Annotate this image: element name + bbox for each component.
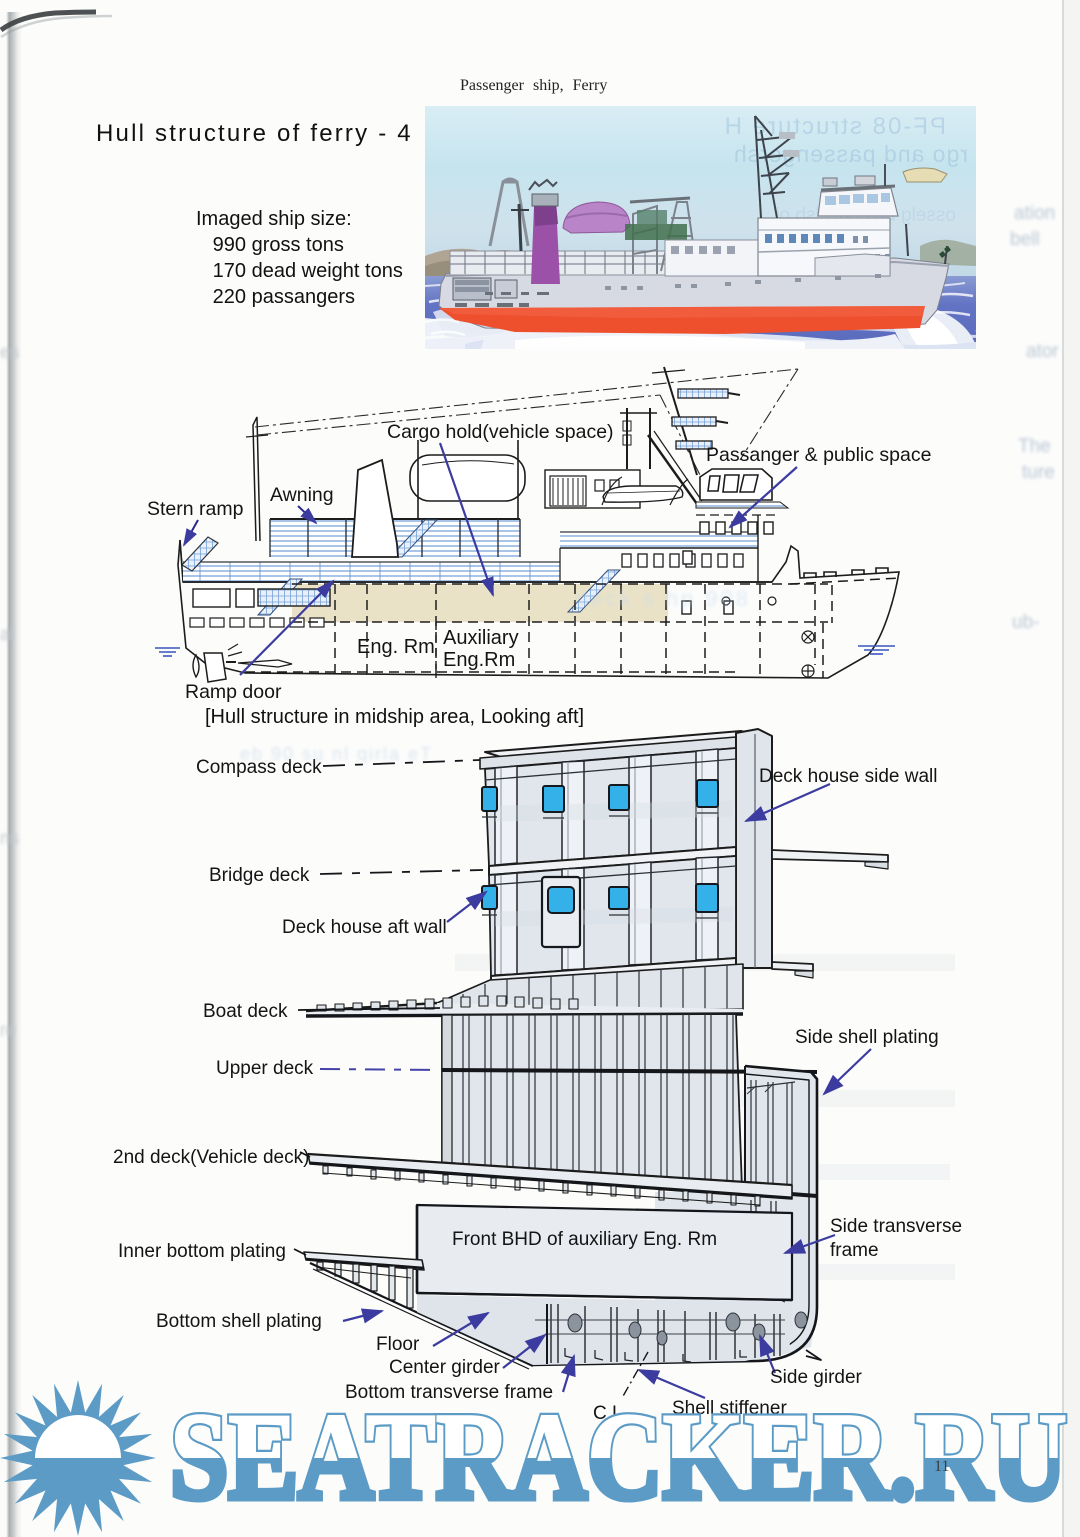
svg-text:Bridge deck: Bridge deck — [209, 865, 310, 886]
svg-text:Floor: Floor — [376, 1334, 420, 1355]
svg-text:Awning: Awning — [270, 484, 334, 506]
svg-text:Deck house aft wall: Deck house aft wall — [282, 917, 447, 938]
svg-text:Eng.Rm: Eng.Rm — [443, 649, 515, 671]
svg-text:Auxiliary: Auxiliary — [443, 627, 519, 649]
svg-text:Center girder: Center girder — [389, 1357, 501, 1378]
svg-text:2nd deck(Vehicle deck): 2nd deck(Vehicle deck) — [113, 1147, 309, 1168]
svg-text:frame: frame — [830, 1240, 879, 1261]
svg-text:Front BHD of auxiliary Eng. Rm: Front BHD of auxiliary Eng. Rm — [452, 1229, 717, 1250]
svg-text:Side shell plating: Side shell plating — [795, 1027, 939, 1048]
svg-text:rgo and passengersh: rgo and passengersh — [733, 141, 968, 167]
svg-text:Upper deck: Upper deck — [216, 1058, 314, 1079]
svg-text:Eng. Rm: Eng. Rm — [357, 636, 435, 658]
svg-text:Stern ramp: Stern ramp — [147, 498, 244, 520]
svg-text:Deck house side wall: Deck house side wall — [759, 766, 937, 787]
svg-text:Boat deck: Boat deck — [203, 1001, 288, 1022]
svg-text:Cargo hold(vehicle space): Cargo hold(vehicle space) — [387, 421, 614, 443]
svg-text:Inner bottom plating: Inner bottom plating — [118, 1241, 286, 1262]
svg-text:Ramp door: Ramp door — [185, 681, 282, 703]
svg-text:Bottom shell plating: Bottom shell plating — [156, 1311, 322, 1332]
svg-text:Side transverse: Side transverse — [830, 1216, 962, 1237]
svg-text:Passanger & public space: Passanger & public space — [706, 444, 931, 466]
